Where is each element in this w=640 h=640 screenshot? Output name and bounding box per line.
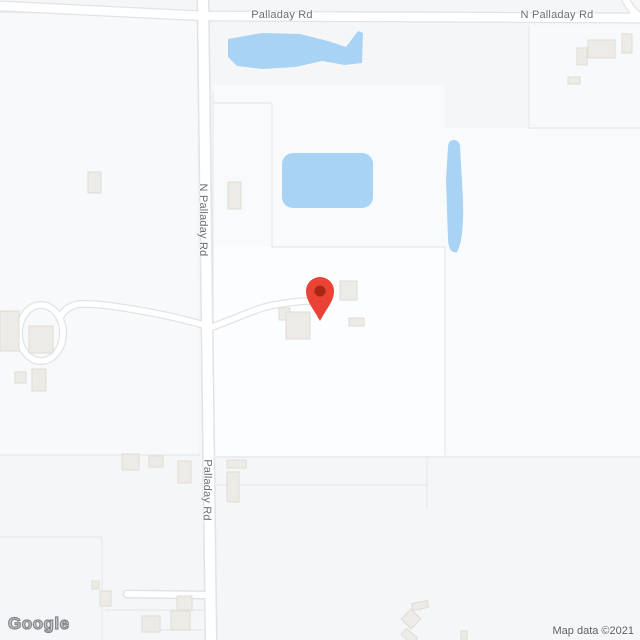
parcels (0, 14, 640, 457)
map-attribution: Map data ©2021 (553, 625, 635, 637)
parcel-northwest (0, 14, 197, 455)
canal-strip (446, 140, 463, 252)
map-viewport[interactable]: Palladay Rd N Palladay Rd N Palladay Rd … (0, 0, 640, 640)
parcel-property (213, 247, 445, 456)
driveway-south (127, 594, 205, 595)
road-label-n-palladay-rd-vertical: N Palladay Rd (197, 184, 209, 257)
road-label-n-palladay-rd-top-east: N Palladay Rd (521, 9, 594, 21)
parcel-east (445, 128, 640, 457)
road-label-palladay-rd-vertical: Palladay Rd (200, 459, 213, 521)
road-label-palladay-rd-top-west: Palladay Rd (251, 9, 313, 21)
pond-north (228, 31, 363, 69)
pond-rect (282, 153, 373, 208)
map-canvas[interactable] (0, 0, 640, 640)
google-logo[interactable]: Google (8, 614, 70, 634)
